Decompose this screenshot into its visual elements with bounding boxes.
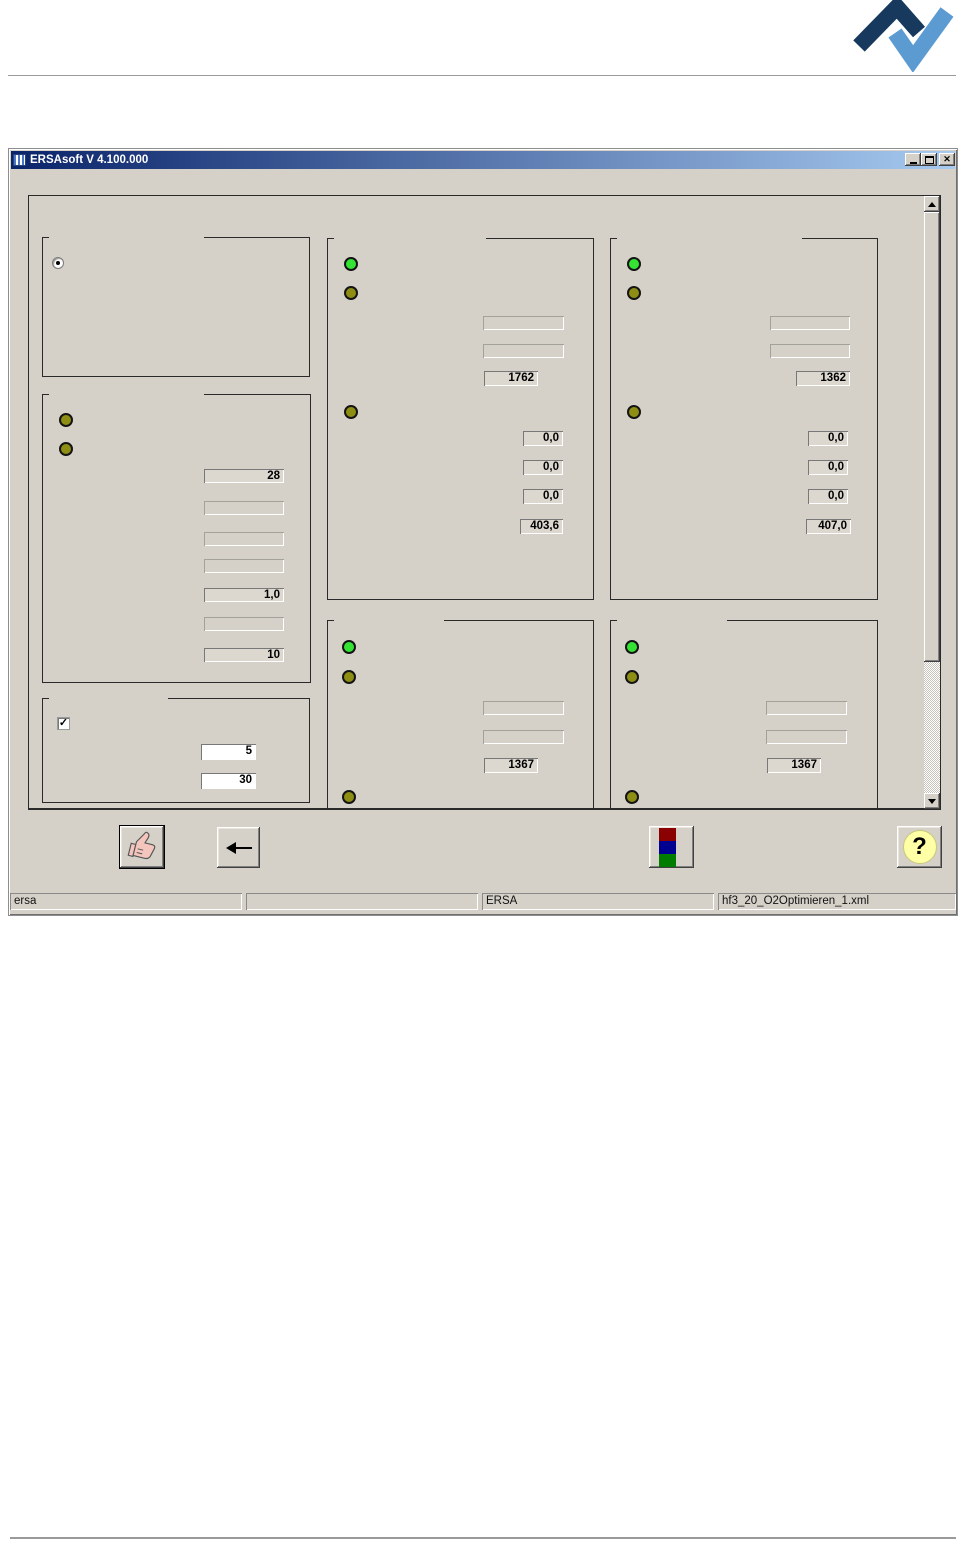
- maximize-icon: [925, 156, 934, 164]
- confirm-button[interactable]: [119, 825, 165, 869]
- field-output: [766, 730, 847, 744]
- field-main-value: 1367: [767, 758, 821, 773]
- status-led: [344, 286, 358, 300]
- checkbox-check-icon: ✓: [59, 717, 68, 729]
- radio-dot: [56, 261, 60, 265]
- status-led: [627, 286, 641, 300]
- field-reading: 0,0: [523, 460, 563, 475]
- group-selection: [42, 237, 310, 377]
- field-reading: 0,0: [808, 460, 848, 475]
- field-output: [204, 501, 284, 515]
- layers-button[interactable]: [649, 826, 694, 868]
- group-label-gap: [49, 394, 204, 395]
- logo-dark-chevron: [859, 7, 919, 46]
- window-title: ERSAsoft V 4.100.000: [30, 154, 148, 166]
- scroll-thumb[interactable]: [924, 212, 940, 662]
- field-main-value: 1762: [484, 371, 538, 386]
- field-output: [483, 316, 564, 330]
- minimize-button[interactable]: [905, 153, 921, 166]
- selection-radio[interactable]: [52, 257, 64, 269]
- app-icon: [13, 154, 26, 166]
- scroll-down-icon: [928, 799, 936, 804]
- field-output: [483, 730, 564, 744]
- close-icon: ✕: [943, 155, 951, 164]
- field-main-value: 1367: [484, 758, 538, 773]
- field-output: [770, 316, 850, 330]
- group-label-gap: [334, 238, 486, 239]
- page: ERSAsoft V 4.100.000 ✕ 28 1,0 10 ✓ 5 30: [0, 0, 966, 1546]
- status-led: [342, 790, 356, 804]
- minimize-icon: [910, 162, 917, 164]
- help-button[interactable]: ?: [897, 826, 942, 868]
- header-rule: [8, 75, 956, 76]
- close-button[interactable]: ✕: [939, 153, 955, 166]
- field-reading: 403,6: [520, 519, 563, 534]
- vertical-scrollbar[interactable]: [924, 196, 940, 809]
- status-led: [59, 442, 73, 456]
- question-mark-icon: ?: [903, 830, 937, 864]
- help-glyph: ?: [912, 833, 927, 861]
- group-label-gap: [617, 620, 727, 621]
- field-reading: 0,0: [523, 431, 563, 446]
- status-led: [625, 640, 639, 654]
- statusbar-panel-2: [246, 893, 478, 910]
- status-led: [627, 257, 641, 271]
- field-output: [204, 617, 284, 631]
- options-checkbox[interactable]: ✓: [57, 717, 70, 730]
- field-output: [483, 701, 564, 715]
- field-reading: 407,0: [806, 519, 851, 534]
- blue-square-icon: [659, 841, 676, 854]
- status-led: [627, 405, 641, 419]
- scroll-up-icon: [928, 202, 936, 207]
- red-square-icon: [659, 828, 676, 841]
- group-station-top-right: [610, 238, 878, 600]
- statusbar-panel-user: ersa: [10, 893, 242, 910]
- option-input[interactable]: 30: [201, 773, 256, 789]
- company-logo: [850, 0, 955, 72]
- group-label-gap: [617, 238, 802, 239]
- footer-rule: [10, 1537, 956, 1539]
- option-input[interactable]: 5: [201, 744, 256, 760]
- field-output: [483, 344, 564, 358]
- field-output: 10: [204, 648, 284, 662]
- group-options: [42, 698, 310, 803]
- color-stack-icon: [659, 828, 676, 867]
- group-label-gap: [334, 620, 444, 621]
- status-led: [344, 257, 358, 271]
- status-led: [342, 670, 356, 684]
- status-led: [59, 413, 73, 427]
- field-output: 28: [204, 469, 284, 483]
- group-station-top-left: [327, 238, 594, 600]
- field-reading: 0,0: [808, 431, 848, 446]
- maximize-button[interactable]: [921, 153, 937, 166]
- field-output: [204, 532, 284, 546]
- titlebar[interactable]: ERSAsoft V 4.100.000: [11, 151, 955, 169]
- field-output: [770, 344, 850, 358]
- status-led: [344, 405, 358, 419]
- field-output: [204, 559, 284, 573]
- field-output: 1,0: [204, 588, 284, 602]
- field-output: [766, 701, 847, 715]
- scroll-down-button[interactable]: [924, 793, 940, 809]
- field-reading: 0,0: [808, 489, 848, 504]
- statusbar-panel-file: hf3_20_O2Optimieren_1.xml: [718, 893, 956, 910]
- status-led: [342, 640, 356, 654]
- left-arrow-icon: [223, 838, 255, 858]
- back-button[interactable]: [217, 827, 260, 868]
- green-square-icon: [659, 854, 676, 867]
- statusbar-panel-machine: ERSA: [482, 893, 714, 910]
- scroll-up-button[interactable]: [924, 196, 940, 212]
- field-reading: 0,0: [523, 489, 563, 504]
- thumbs-up-icon: [124, 830, 160, 864]
- group-label-gap: [49, 698, 168, 699]
- status-led: [625, 790, 639, 804]
- status-led: [625, 670, 639, 684]
- field-main-value: 1362: [796, 371, 850, 386]
- group-label-gap: [49, 237, 204, 238]
